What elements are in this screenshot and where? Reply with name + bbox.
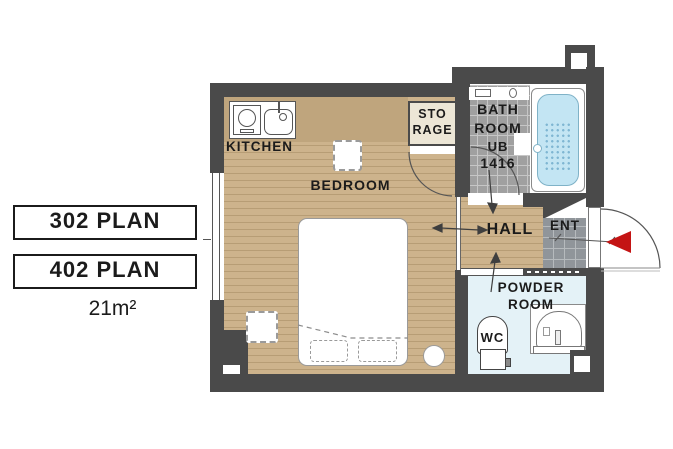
burner-icon [238,109,256,127]
vanity-soap-icon [543,327,550,336]
bathroom-door-threshold [468,193,523,205]
vanity-faucet-icon [555,330,561,345]
bath-shower-icon [509,88,517,98]
storage-line: RAGE [408,122,457,138]
right-wall-upper [586,67,604,207]
bed-pillow-icon [310,340,348,362]
window-center-tick [203,239,211,240]
bathtub-faucet-icon [533,144,542,153]
room-label-hall: HALL [480,221,540,239]
powder-line: ROOM [487,296,575,313]
left-wall-upper [210,83,224,173]
storage-line: STO [408,106,457,122]
storage-door-opening [410,146,455,154]
bedroom-hall-partition [456,197,461,270]
bathroom-line: BATH [466,100,530,119]
area-label: 21m² [55,297,170,321]
entry-arrow-icon [606,231,631,253]
entrance-step-dashes [527,271,582,273]
bathroom-line: ROOM [466,119,530,138]
plan-402-label: 402 PLAN [13,254,197,289]
bottom-wall [210,374,604,392]
bottom-right-pillar-hole [574,356,590,372]
sink-drain-icon [279,113,287,121]
side-table-icon [246,311,278,343]
top-pillar-hole [571,53,587,69]
top-wall [210,83,460,97]
faucet-icon [278,101,280,113]
bedroom-powder-wall [455,270,468,374]
toilet-handle-icon [505,358,511,367]
room-label-powder-room: POWDER ROOM [487,279,575,313]
entrance-door-arc [601,209,660,268]
powder-sliding-door [461,268,523,276]
floorplan-page: 302 PLAN 402 PLAN 21m² [0,0,673,449]
plan-302-label: 302 PLAN [13,205,197,240]
room-label-entrance: ENT [546,218,584,233]
room-label-bedroom: BEDROOM [303,177,398,193]
wall-cabinet-icon [333,140,362,171]
stove-grill-icon [240,129,254,133]
entrance-door-leaf [588,207,601,268]
room-label-kitchen: KITCHEN [226,139,316,154]
left-window-line [219,173,220,300]
entry-tick [609,237,615,244]
bathtub-mat-dots [544,122,572,172]
room-label-bathroom: BATH ROOM UB 1416 [466,100,530,172]
bathroom-line: UB [466,138,530,155]
room-label-wc: WC [477,330,508,345]
bed-pillow-icon [358,340,397,362]
powder-line: POWDER [487,279,575,296]
room-label-storage: STO RAGE [408,106,457,138]
left-window-line [212,173,213,300]
bath-sink-icon [475,89,491,97]
toilet-tank-icon [480,349,506,370]
bathroom-line: 1416 [466,155,530,172]
stool-icon [423,345,445,367]
